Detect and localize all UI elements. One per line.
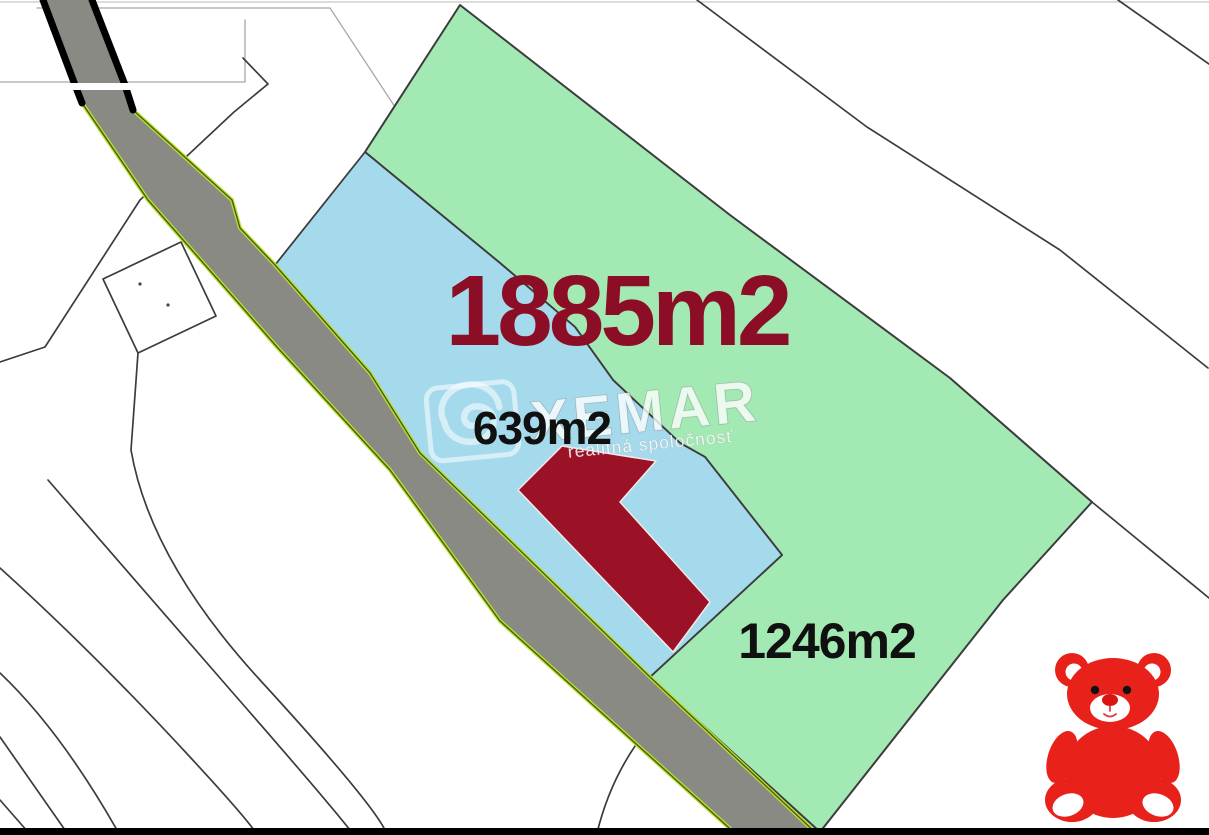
label-area-blue: 639m2 — [473, 402, 611, 454]
bear-nose — [1102, 694, 1118, 706]
survey-dot-2 — [166, 303, 169, 306]
cadastral-map: XEMAR realitná spoločnosť 1885m2 639m2 1… — [0, 0, 1209, 835]
road-white-break — [60, 83, 144, 90]
bottom-border — [0, 828, 1209, 835]
bear-eye-right — [1123, 686, 1131, 694]
survey-dot-1 — [138, 282, 141, 285]
bear-eye-left — [1091, 686, 1099, 694]
label-area-green: 1246m2 — [738, 613, 916, 669]
cadastral-map-screenshot: XEMAR realitná spoločnosť 1885m2 639m2 1… — [0, 0, 1209, 835]
teddy-bear-icon — [1040, 653, 1185, 822]
label-area-total: 1885m2 — [446, 255, 789, 367]
